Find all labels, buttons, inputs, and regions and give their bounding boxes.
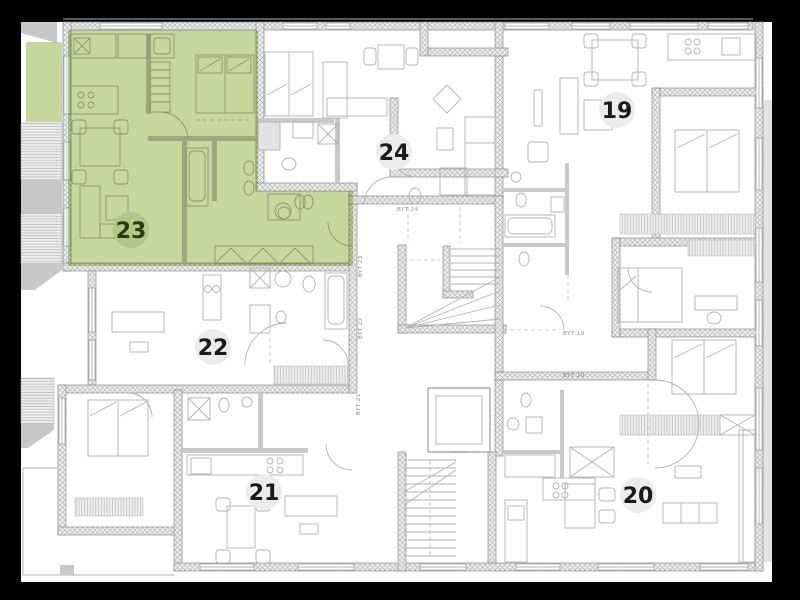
svg-text:19: 19 bbox=[602, 99, 633, 124]
apartment-23-balcony bbox=[26, 42, 62, 122]
apartment-badge-22[interactable]: 22 bbox=[195, 329, 231, 365]
unit-label-byt-20: BYT 20 bbox=[563, 373, 585, 379]
apartment-badge-24[interactable]: 24 bbox=[376, 134, 412, 170]
svg-text:20: 20 bbox=[623, 484, 654, 509]
unit-label-byt-22: BYT 22 bbox=[358, 317, 364, 339]
floor-plan-viewport: BYT 24BYT 23BYT 22BYT 21BYT 19BYT 20 192… bbox=[0, 0, 800, 600]
svg-text:21: 21 bbox=[249, 481, 280, 506]
unit-label-byt-24: BYT 24 bbox=[397, 207, 419, 213]
svg-text:23: 23 bbox=[116, 219, 147, 244]
unit-label-byt-19: BYT 19 bbox=[563, 331, 585, 337]
apartment-badge-23[interactable]: 23 bbox=[113, 212, 149, 248]
unit-label-byt-23: BYT 23 bbox=[358, 255, 364, 277]
floor-plan-svg: BYT 24BYT 23BYT 22BYT 21BYT 19BYT 20 192… bbox=[0, 0, 800, 600]
svg-text:22: 22 bbox=[198, 336, 229, 361]
apartment-badge-20[interactable]: 20 bbox=[620, 477, 656, 513]
apartment-badge-19[interactable]: 19 bbox=[599, 92, 635, 128]
unit-label-byt-21: BYT 21 bbox=[356, 393, 362, 415]
svg-text:24: 24 bbox=[379, 141, 410, 166]
apartment-badge-21[interactable]: 21 bbox=[246, 474, 282, 510]
